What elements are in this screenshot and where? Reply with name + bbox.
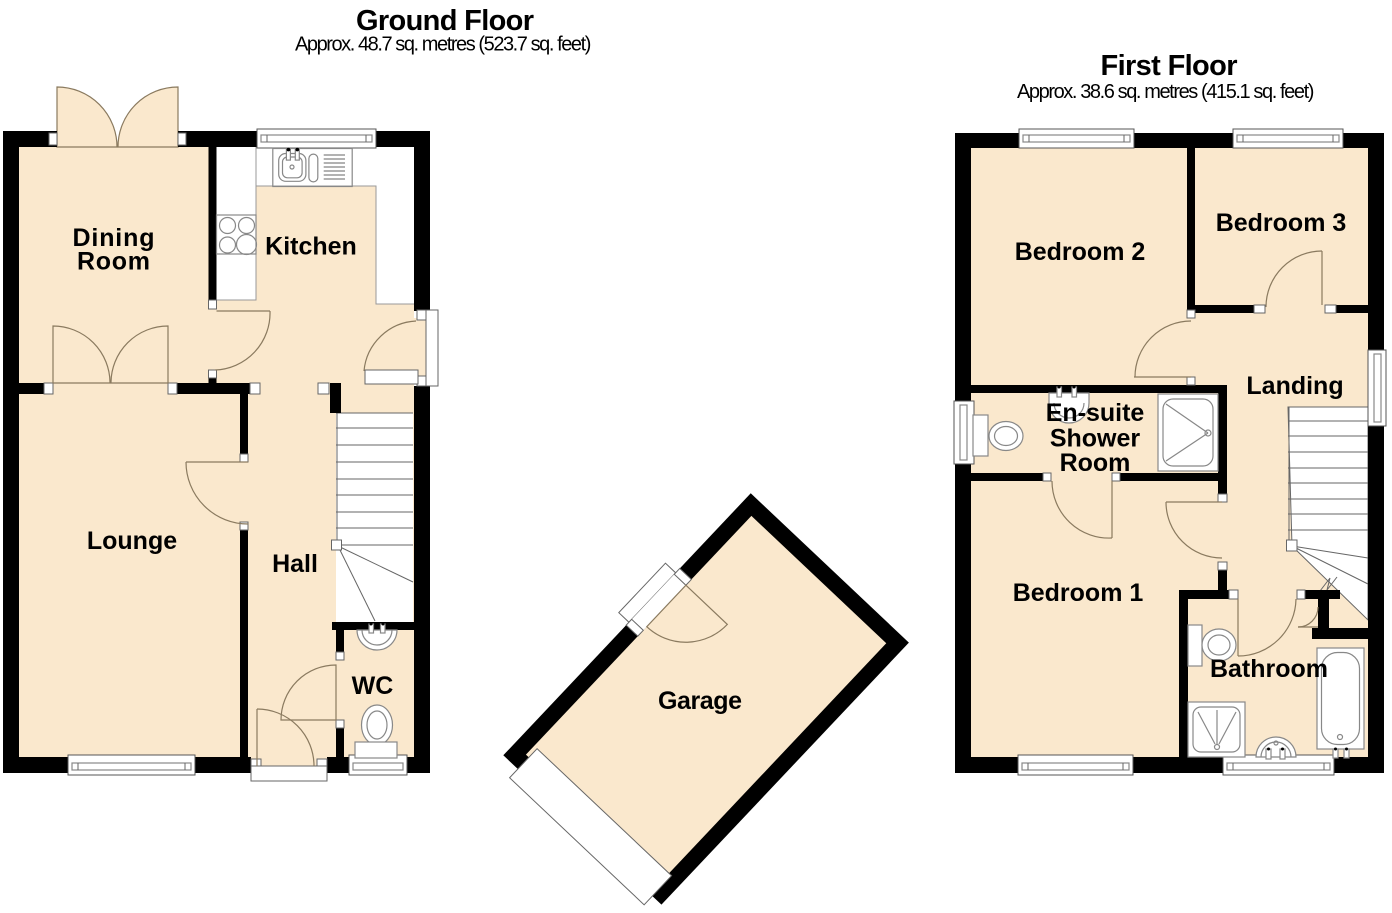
svg-text:Hall: Hall	[272, 550, 318, 578]
svg-text:Room: Room	[1060, 449, 1131, 477]
svg-text:Lounge: Lounge	[87, 527, 177, 555]
svg-text:Approx. 48.7 sq. metres (523.7: Approx. 48.7 sq. metres (523.7 sq. feet)	[295, 34, 591, 56]
svg-text:Garage: Garage	[658, 687, 742, 715]
svg-text:Kitchen: Kitchen	[265, 233, 357, 261]
svg-text:Ground Floor: Ground Floor	[356, 5, 534, 37]
svg-text:Bedroom 3: Bedroom 3	[1216, 209, 1347, 237]
svg-text:En-suite: En-suite	[1046, 399, 1145, 427]
svg-text:Bedroom 2: Bedroom 2	[1015, 238, 1146, 266]
svg-text:First Floor: First Floor	[1101, 50, 1238, 82]
svg-text:Landing: Landing	[1246, 372, 1343, 400]
svg-text:WC: WC	[352, 672, 394, 700]
svg-text:Bathroom: Bathroom	[1210, 655, 1328, 683]
svg-text:Room: Room	[77, 248, 150, 276]
svg-text:Approx. 38.6 sq. metres (415.1: Approx. 38.6 sq. metres (415.1 sq. feet)	[1017, 81, 1314, 103]
svg-text:Bedroom 1: Bedroom 1	[1013, 579, 1144, 607]
